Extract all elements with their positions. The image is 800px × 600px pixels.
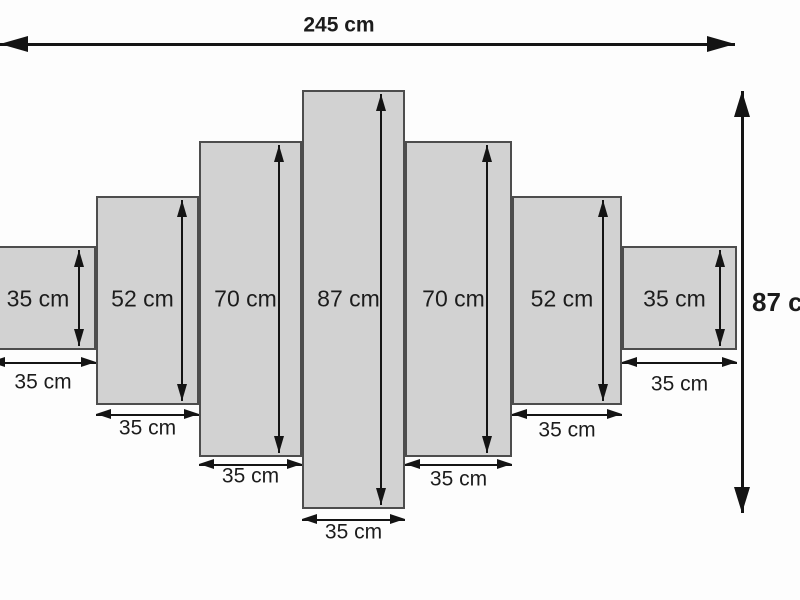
panel-6-width-label: 35 cm [538,420,595,441]
panel-1-height-arrow [78,250,80,346]
panel-2-width-label: 35 cm [119,418,176,439]
panel-2-height-label: 52 cm [111,288,174,311]
panel-7-width-arrow [622,362,737,364]
overall-width-arrow [0,43,735,46]
panel-7-width-label: 35 cm [651,374,708,395]
panel-5-height-arrow [486,145,488,453]
overall-height-arrow [741,91,744,513]
panel-6-width-arrow [512,414,622,416]
panel-7-height-label: 35 cm [643,288,706,311]
panel-5-width-label: 35 cm [430,469,487,490]
overall-height-label: 87 cm [752,289,800,315]
panel-5-width-arrow [405,464,512,466]
panel-3-height-arrow [278,145,280,453]
overall-width-label: 245 cm [303,15,374,36]
panel-2-height-arrow [181,200,183,401]
panel-1-width-label: 35 cm [14,372,71,393]
panel-4-width-label: 35 cm [325,522,382,543]
panel-7-height-arrow [719,250,721,346]
panel-6-height-label: 52 cm [531,288,594,311]
panel-3-height-label: 70 cm [214,288,277,311]
panel-4-height-label: 87 cm [317,288,380,311]
panel-4-height-arrow [380,94,382,505]
panel-1-width-arrow [0,362,96,364]
panel-1-height-label: 35 cm [7,288,70,311]
panel-6-height-arrow [602,200,604,401]
panel-3-width-label: 35 cm [222,466,279,487]
panel-5-height-label: 70 cm [422,288,485,311]
panel-dimension-diagram: 245 cm 87 cm 35 cm35 cm52 cm35 cm70 cm35… [0,0,800,600]
